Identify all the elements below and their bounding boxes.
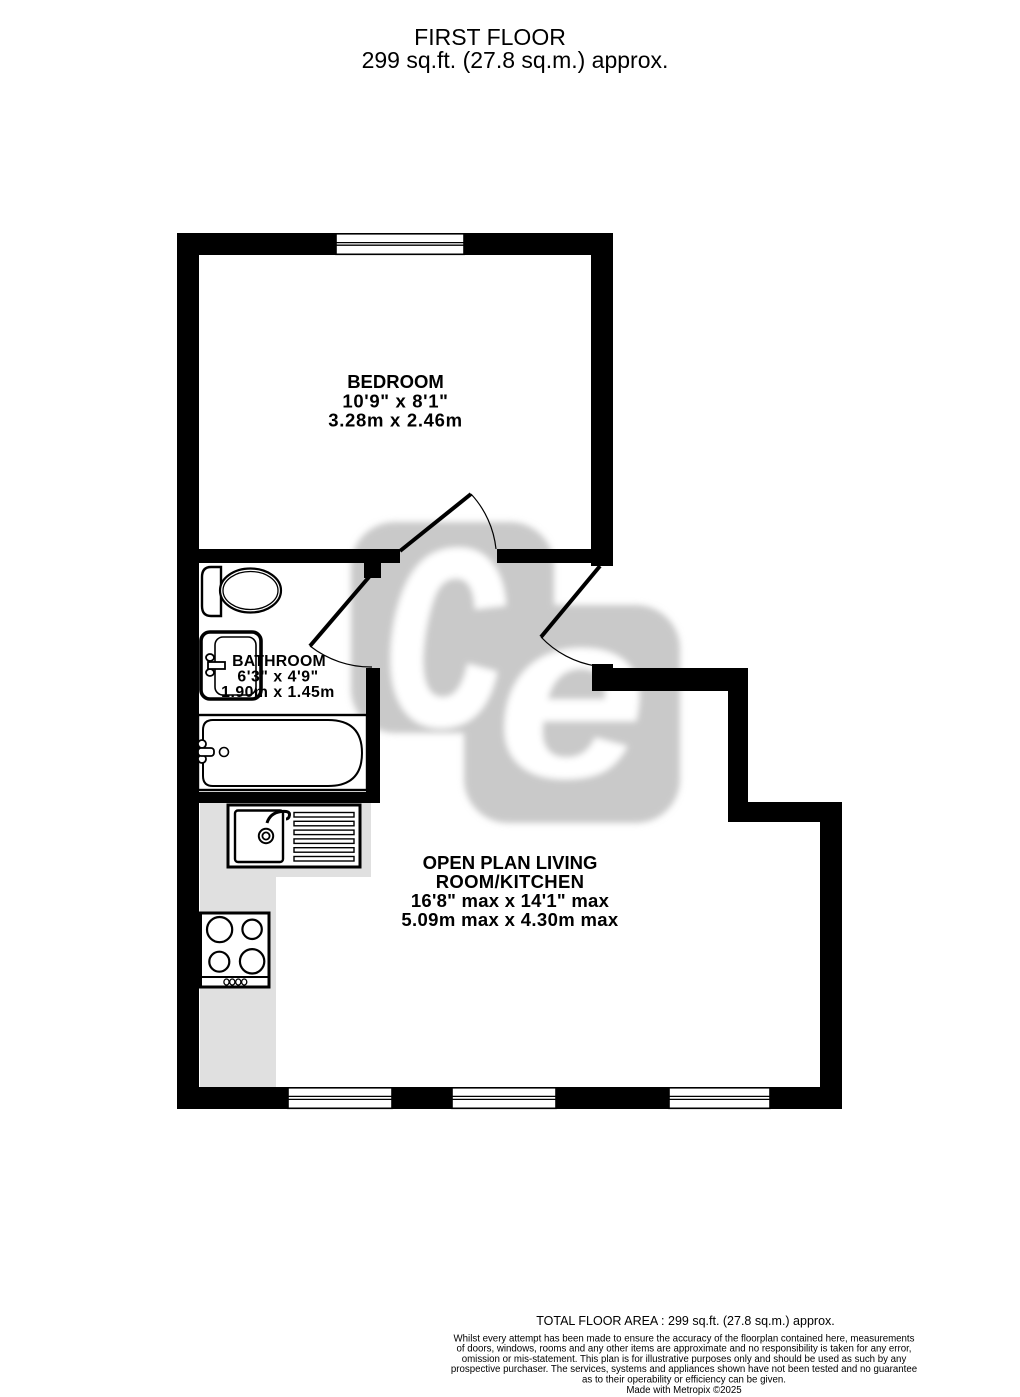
svg-text:299 sq.ft. (27.8 sq.m.) approx: 299 sq.ft. (27.8 sq.m.) approx. bbox=[362, 47, 669, 73]
svg-text:BATHROOM: BATHROOM bbox=[232, 653, 326, 670]
svg-text:6'3" x 4'9": 6'3" x 4'9" bbox=[237, 669, 318, 686]
svg-text:c: c bbox=[384, 426, 510, 795]
svg-text:OPEN PLAN LIVING: OPEN PLAN LIVING bbox=[423, 852, 598, 873]
svg-text:TOTAL FLOOR AREA : 299 sq.ft.: TOTAL FLOOR AREA : 299 sq.ft. (27.8 sq.m… bbox=[536, 1314, 835, 1328]
svg-text:Made with Metropix ©2025: Made with Metropix ©2025 bbox=[626, 1385, 741, 1396]
svg-text:5.09m max x 4.30m max: 5.09m max x 4.30m max bbox=[401, 909, 619, 930]
svg-text:BEDROOM: BEDROOM bbox=[347, 371, 444, 392]
svg-text:10'9" x 8'1": 10'9" x 8'1" bbox=[342, 391, 448, 412]
svg-text:1.90m x 1.45m: 1.90m x 1.45m bbox=[221, 684, 335, 701]
svg-text:16'8" max x 14'1" max: 16'8" max x 14'1" max bbox=[411, 890, 610, 911]
svg-text:3.28m x 2.46m: 3.28m x 2.46m bbox=[328, 410, 463, 431]
svg-text:ROOM/KITCHEN: ROOM/KITCHEN bbox=[436, 871, 585, 892]
